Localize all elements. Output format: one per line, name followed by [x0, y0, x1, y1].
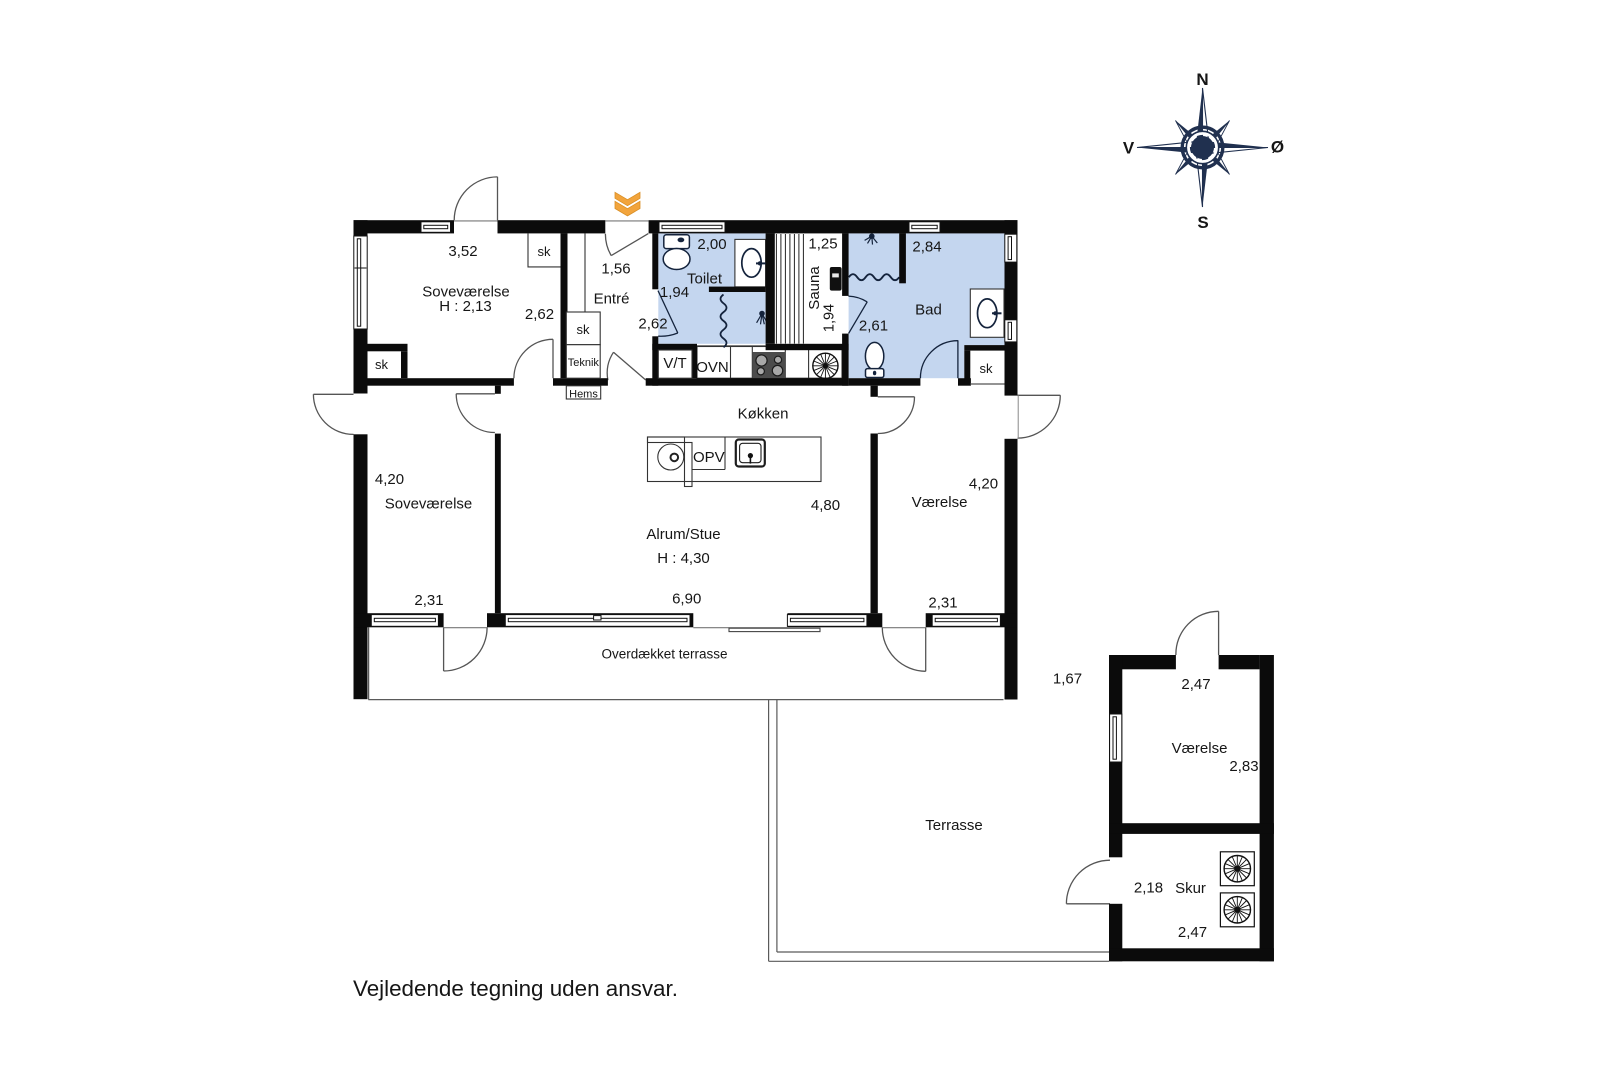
- svg-text:1,94: 1,94: [660, 284, 689, 301]
- svg-text:2,62: 2,62: [638, 316, 667, 333]
- svg-text:sk: sk: [980, 361, 994, 376]
- svg-text:Hems: Hems: [569, 388, 598, 400]
- svg-text:Værelse: Værelse: [912, 494, 968, 511]
- svg-text:3,52: 3,52: [448, 243, 477, 260]
- svg-text:4,20: 4,20: [375, 471, 404, 488]
- svg-text:6,90: 6,90: [672, 591, 701, 608]
- svg-text:sk: sk: [577, 322, 591, 337]
- svg-text:S: S: [1197, 213, 1208, 232]
- svg-text:Terrasse: Terrasse: [925, 817, 983, 834]
- svg-text:Entré: Entré: [594, 291, 630, 308]
- svg-text:2,61: 2,61: [859, 318, 888, 335]
- svg-text:2,18: 2,18: [1134, 880, 1163, 897]
- svg-text:sk: sk: [538, 244, 552, 259]
- svg-text:V/T: V/T: [663, 355, 686, 372]
- svg-text:4,20: 4,20: [969, 476, 998, 493]
- svg-text:4,80: 4,80: [811, 497, 840, 514]
- svg-text:1,56: 1,56: [601, 261, 630, 278]
- svg-text:Overdækket terrasse: Overdækket terrasse: [601, 647, 727, 662]
- svg-text:Vejledende tegning uden ansvar: Vejledende tegning uden ansvar.: [353, 976, 678, 1001]
- svg-text:V: V: [1123, 139, 1135, 158]
- svg-text:Køkken: Køkken: [738, 406, 789, 423]
- svg-text:Teknik: Teknik: [568, 357, 600, 369]
- svg-text:2,47: 2,47: [1181, 676, 1210, 693]
- svg-text:2,31: 2,31: [414, 592, 443, 609]
- svg-text:Bad: Bad: [915, 302, 942, 319]
- svg-text:N: N: [1196, 70, 1208, 89]
- svg-text:Ø: Ø: [1271, 138, 1284, 157]
- svg-text:2,62: 2,62: [525, 306, 554, 323]
- svg-text:2,83: 2,83: [1229, 758, 1258, 775]
- svg-text:OVN: OVN: [696, 359, 729, 376]
- svg-text:OPV: OPV: [693, 449, 725, 466]
- svg-text:H : 4,30: H : 4,30: [657, 550, 710, 567]
- svg-text:1,25: 1,25: [808, 236, 837, 253]
- svg-text:Værelse: Værelse: [1172, 740, 1228, 757]
- svg-text:1,67: 1,67: [1053, 671, 1082, 688]
- svg-text:2,84: 2,84: [912, 239, 941, 256]
- svg-text:1,94: 1,94: [822, 304, 838, 332]
- svg-text:sk: sk: [375, 357, 389, 372]
- svg-text:Alrum/Stue: Alrum/Stue: [646, 526, 720, 543]
- svg-text:Toilet: Toilet: [687, 271, 723, 288]
- svg-text:Soveværelse: Soveværelse: [385, 496, 473, 513]
- svg-text:2,31: 2,31: [928, 595, 957, 612]
- svg-text:Sauna: Sauna: [806, 266, 823, 310]
- svg-text:2,47: 2,47: [1178, 924, 1207, 941]
- svg-text:2,00: 2,00: [697, 236, 726, 253]
- svg-text:Skur: Skur: [1175, 880, 1206, 897]
- svg-text:H : 2,13: H : 2,13: [439, 298, 492, 315]
